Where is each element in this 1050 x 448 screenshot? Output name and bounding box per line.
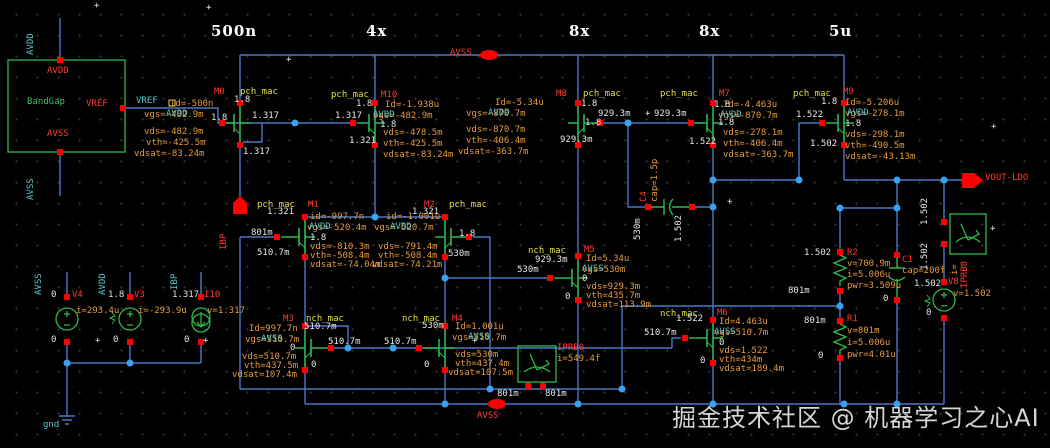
net-label: 1.8 — [356, 99, 372, 109]
net-label: vdsat=-43.13m — [845, 152, 915, 162]
instance-i10: I10 — [204, 290, 220, 300]
net-label: vth=-425.5m — [383, 139, 443, 149]
net-label: 801m — [251, 228, 273, 238]
net-label: 530m — [422, 321, 444, 331]
net-label: 0 — [51, 335, 56, 345]
net-label: AVDD — [26, 33, 36, 55]
watermark: 掘金技术社区 @ 机器学习之心AI — [672, 398, 1040, 433]
net-label: v=1.317 — [207, 306, 245, 316]
net-label: AVDD — [373, 110, 395, 120]
net-label: AVSS — [26, 178, 36, 200]
net-label: 1.321 — [349, 136, 376, 146]
net-label: i= — [950, 264, 960, 275]
pin-vout-ldo: VOUT-LDO — [985, 173, 1028, 183]
net-label: 1.317 — [252, 111, 279, 121]
instance-r2: R2 — [847, 248, 858, 258]
pin-avss-top: AVSS — [450, 48, 472, 58]
schematic-canvas[interactable]: 500n4x8x8x5uAVDDAVSSAVDDBandGapVREFAVSSV… — [0, 0, 1050, 448]
net-label: 530m — [448, 249, 470, 259]
instance-v4: V4 — [72, 290, 83, 300]
net-label: Id=-500n — [170, 99, 213, 109]
net-label: 1.502 — [920, 243, 930, 270]
net-label: pch_mac — [449, 200, 487, 210]
net-label: 1.317 — [335, 111, 362, 121]
net-label: 801m — [804, 316, 826, 326]
net-label: AVDD — [390, 222, 412, 232]
net-label: 500n — [211, 22, 257, 40]
net-label: v=1.502 — [953, 289, 991, 299]
net-label: vdsat=-83.24m — [383, 150, 453, 160]
instance-m9: M9 — [843, 87, 854, 97]
instance-bandgap: BandGap — [27, 97, 65, 107]
net-label: 0 — [51, 290, 56, 300]
net-label: 0 — [424, 360, 429, 370]
net-label: VREF — [86, 99, 108, 109]
net-label: vdsat=-83.24m — [134, 149, 204, 159]
net-label: vth=-406.4m — [723, 139, 783, 149]
net-label: 510.7m — [304, 322, 337, 332]
net-label: AVDD — [98, 273, 108, 295]
net-label: v=801m — [847, 326, 880, 336]
net-label: pch_mac — [583, 89, 621, 99]
net-label: Id=-1.938u — [385, 100, 439, 110]
net-label: 8x — [569, 22, 590, 40]
net-label: vth=-490.5m — [845, 141, 905, 151]
net-label: + — [94, 1, 99, 11]
net-label: + — [645, 109, 650, 119]
net-label: Id=1.001u — [455, 322, 504, 332]
net-label: + — [990, 224, 995, 234]
net-label: vth=-425.5m — [146, 138, 206, 148]
pin-avss-bottom: AVSS — [477, 411, 499, 421]
instance-r1: R1 — [847, 314, 858, 324]
net-label: AVSS — [582, 264, 604, 274]
net-label: 1.522 — [689, 137, 716, 147]
net-label: vds=-278.1m — [723, 128, 783, 138]
net-label: AVSS — [714, 327, 736, 337]
net-label: 4x — [366, 22, 387, 40]
net-label: AVDD — [488, 108, 510, 118]
instance-m3: M3 — [283, 314, 294, 324]
net-label: 0 — [113, 335, 118, 345]
net-label: AVSS — [34, 273, 44, 295]
net-label: vdsat=-363.7m — [458, 147, 528, 157]
instance-m8: M8 — [556, 89, 567, 99]
net-label: id=-997.7n — [310, 212, 364, 222]
net-label: 8x — [699, 22, 720, 40]
net-label: 1.502 — [914, 279, 941, 289]
pin-ibp: IBP — [219, 234, 229, 250]
net-label: i=293.4u — [76, 306, 119, 316]
net-label: AVDD — [309, 222, 331, 232]
net-label: 1.502 — [810, 139, 837, 149]
net-label: + — [727, 197, 732, 207]
net-label: Id=4.463u — [719, 317, 768, 327]
net-label: Id=5.34u — [586, 254, 629, 264]
net-label: 510.7m — [384, 337, 417, 347]
net-label: 1.321 — [267, 207, 294, 217]
instance-m0: M0 — [214, 87, 225, 97]
net-label: 1.8 — [585, 118, 601, 128]
net-label: 1.502 — [674, 215, 684, 242]
net-label: 1.8 — [211, 113, 227, 123]
net-label: IBP — [170, 274, 180, 290]
instance-iprb0: IPRB0 — [557, 343, 584, 353]
net-label: 1.522 — [676, 314, 703, 324]
net-label: Id=997.7n — [249, 324, 298, 334]
net-label: 1.522 — [796, 110, 823, 120]
net-label: vdsat=-363.7m — [723, 150, 793, 160]
net-label: 929.3m — [535, 255, 568, 265]
net-label: 1.8 — [581, 99, 597, 109]
net-label: 1.8 — [845, 119, 861, 129]
net-label: 510.7m — [257, 248, 290, 258]
net-label: AVSS — [261, 334, 283, 344]
net-label: + — [472, 336, 477, 346]
net-label: AVDD — [47, 66, 69, 76]
net-label: i=5.006u — [847, 338, 890, 348]
net-label: vdsat=-74.04m — [310, 260, 380, 270]
net-label: Id=-5.34u — [495, 98, 544, 108]
net-label: i=-293.9u — [138, 306, 187, 316]
net-label: cap=1.5p — [650, 159, 660, 202]
net-label: 0 — [565, 292, 570, 302]
net-label: vds=-298.1m — [845, 130, 905, 140]
net-label: vds=-870.7m — [466, 125, 526, 135]
net-label: AVDD — [166, 109, 188, 119]
net-label: 1.317 — [172, 290, 199, 300]
instance-c1: C1 — [902, 255, 913, 265]
net-label: 1.8 — [821, 97, 837, 107]
net-label: Id=-5.206u — [845, 98, 899, 108]
net-label: id=-1.001u — [386, 212, 440, 222]
net-label: 801m — [788, 286, 810, 296]
net-label: vds=-482.9m — [144, 127, 204, 137]
net-label: 530m — [517, 265, 539, 275]
net-label: v=700.9m — [847, 259, 890, 269]
net-label: vds=-478.5m — [383, 128, 443, 138]
net-label: vdsat=113.9m — [586, 300, 651, 310]
net-label: pwr=4.01u — [847, 350, 896, 360]
net-label: 1.8 — [234, 95, 250, 105]
net-label: 1.8 — [459, 229, 475, 239]
net-label: i=549.4f — [557, 354, 600, 364]
net-label: 530m — [633, 218, 643, 240]
net-label: 1.8 — [108, 290, 124, 300]
instance-v3: V3 — [134, 290, 145, 300]
net-label: 1.502 — [804, 248, 831, 258]
net-label: 5u — [829, 22, 852, 40]
net-label: AVDD — [847, 108, 869, 118]
net-label: 510.7m — [328, 337, 361, 347]
net-label: + — [991, 122, 996, 132]
net-label: pch_mac — [660, 89, 698, 99]
net-label: gnd — [43, 420, 59, 430]
net-label: 1.502 — [920, 198, 930, 225]
net-label: 929.3m — [560, 135, 593, 145]
net-label: + — [206, 3, 211, 13]
annotation-layer: 500n4x8x8x5uAVDDAVSSAVDDBandGapVREFAVSSV… — [0, 0, 1050, 448]
instance-m10: M10 — [381, 90, 397, 100]
net-label: 801m — [545, 389, 567, 399]
net-label: vdsat=107.4m — [232, 370, 297, 380]
net-label: 0 — [700, 356, 705, 366]
instance-iprb8: IPRB8 — [960, 261, 970, 288]
net-label: + — [203, 336, 208, 346]
net-label: 0 — [883, 294, 888, 304]
net-label: 510.7m — [644, 328, 677, 338]
net-label: 0 — [926, 308, 931, 318]
net-label: 929.3m — [654, 109, 687, 119]
net-label: + — [286, 55, 291, 65]
net-label: + — [95, 336, 100, 346]
net-label: 0 — [818, 351, 823, 361]
net-label: vth=-406.4m — [466, 136, 526, 146]
instance-c4: C4 — [639, 191, 649, 202]
net-label: 0 — [184, 335, 189, 345]
net-label: AVDD — [720, 110, 742, 120]
instance-v8: V8 — [948, 277, 959, 287]
net-label: vdsat=107.5m — [448, 368, 513, 378]
net-label: 1.317 — [243, 147, 270, 157]
net-label: AVSS — [47, 129, 69, 139]
instance-m1: M1 — [308, 200, 319, 210]
instance-m7: M7 — [719, 89, 730, 99]
net-label: vdsat=-74.21m — [372, 260, 442, 270]
net-label: vdsat=189.4m — [719, 364, 784, 374]
net-label: pwr=3.509u — [847, 281, 901, 291]
net-label: 801m — [497, 389, 519, 399]
net-label: Id=-4.463u — [723, 100, 777, 110]
net-label: 0 — [311, 360, 316, 370]
net-label: 929.3m — [598, 109, 631, 119]
net-label: i=5.006u — [847, 270, 890, 280]
net-label: VREF — [136, 96, 158, 106]
